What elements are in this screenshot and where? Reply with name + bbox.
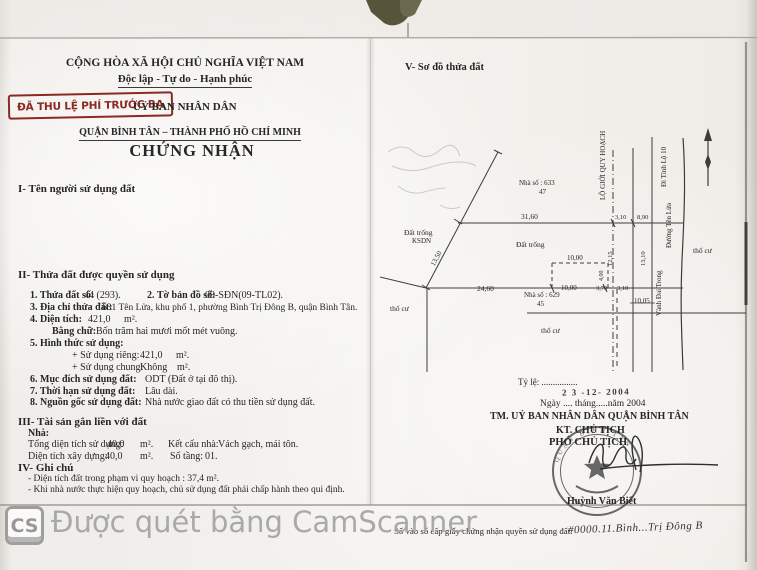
map-dim-890: 8,90 (637, 214, 648, 221)
s3-row1-value2: Vách gạch, mái tôn. (218, 439, 298, 450)
item8-label: 8. Nguồn gốc sử dụng đất: (30, 397, 142, 408)
map-dim-1310: 13,10 (640, 251, 647, 266)
section3-sub: Nhà: (28, 428, 49, 439)
section3-heading: III- Tài sản gắn liền với đất (18, 416, 147, 428)
map-dim-370: 3,70 (596, 285, 607, 292)
map-road-vanhdai-label: Vành Đai Trong (656, 270, 664, 316)
north-arrow (704, 128, 712, 186)
s3-row1-unit: m². (140, 439, 153, 450)
issuer: UỶ BAN NHÂN DÂN (133, 101, 237, 113)
map-dim-1000a: 10,00 (567, 255, 583, 263)
map-resid2: thổ cư (541, 327, 560, 335)
map-house633-no: 47 (539, 189, 546, 197)
camscanner-logo-text: CS (11, 515, 39, 537)
map-dim-400: 4,00 (599, 271, 606, 282)
district-line: QUẬN BÌNH TÂN – THÀNH PHỐ HỒ CHÍ MINH (79, 127, 301, 141)
scanned-certificate-page: QUẬN BÌNH TÂN CỘNG HÒA XÃ HỘI CHỦ NGHĨA … (0, 0, 757, 570)
item4b-value: Bốn trăm hai mươi mốt mét vuông. (96, 326, 238, 337)
map-dim-310b: 3,10 (617, 285, 628, 292)
item5b-unit: m². (177, 362, 190, 373)
section2-heading: II- Thửa đất được quyền sử dụng (18, 269, 175, 281)
date-line: Ngày .... tháng.....năm 2004 (540, 399, 646, 409)
item3-label: 3. Địa chỉ thửa đất: (30, 302, 112, 313)
map-house633: Nhà số : 633 (519, 180, 555, 188)
map-dim-310a: 3,10 (615, 214, 626, 221)
item3-value: 631 Tên Lửa, khu phố 1, phường Bình Trị … (102, 303, 357, 313)
title-pho-chu-tich: PHÓ CHỦ TỊCH (549, 437, 627, 449)
item5-label: 5. Hình thức sử dụng: (30, 338, 123, 349)
map-dim-1005: 10,05 (634, 298, 650, 306)
item5a-value: 421,0 (140, 350, 163, 361)
item4-label: 4. Diện tích: (30, 314, 82, 325)
authority-line: TM. UỶ BAN NHÂN DÂN QUẬN BÌNH TÂN (490, 411, 689, 422)
map-house629: Nhà số : 629 (524, 292, 560, 300)
parcel-diagonal-boundary (426, 152, 498, 288)
map-dim-2460: 24,60 (477, 285, 494, 293)
item7-value: Lâu dài. (145, 386, 178, 397)
item5b-label: + Sử dụng chung: (72, 362, 143, 373)
section4-heading: IV- Ghi chú (18, 462, 73, 474)
item8-value: Nhà nước giao đất có thu tiền sử dụng đấ… (145, 397, 315, 408)
scale-line: Tỷ lệ: ................ (518, 378, 578, 388)
s3-row2-label: Diện tích xây dựng: (28, 451, 108, 462)
map-road-boundary-label: LỘ GIỚI QUY HOẠCH (600, 131, 608, 200)
item2-value: 09-SĐN(09-TL02). (205, 290, 283, 301)
s4-note2: - Khi nhà nước thực hiện quy hoạch, chủ … (28, 485, 345, 495)
road-line-4 (681, 138, 684, 370)
section1-heading: I- Tên người sử dụng đất (18, 183, 135, 195)
map-vacant2: Đất trống (516, 241, 545, 249)
item1-value: 44 (293). (84, 290, 121, 301)
item4-unit: m². (124, 314, 137, 325)
map-road-tenlua-label: Đường Tên Lửa (666, 203, 674, 248)
item4-value: 421,0 (88, 314, 111, 325)
s3-row2-unit: m². (140, 451, 153, 462)
item5b-value: Không (140, 362, 167, 373)
map-resid1: thổ cư (390, 305, 409, 313)
district-line-row: QUẬN BÌNH TÂN – THÀNH PHỐ HỒ CHÍ MINH (0, 127, 380, 138)
s4-note1: - Diện tích đất trong phạm vi quy hoạch … (28, 474, 219, 484)
tape-mark (366, 0, 422, 37)
map-dim-1000b: 10,00 (561, 285, 577, 293)
map-heading: V- Sơ đồ thửa đất (405, 62, 484, 74)
s3-row1-value: 40,0 (107, 439, 125, 450)
s3-row1-label2: Kết cấu nhà: (168, 439, 219, 450)
camscanner-watermark-text: Được quét bằng CamScanner (51, 505, 477, 539)
pencil-scribbles (388, 145, 476, 208)
item5a-unit: m². (176, 350, 189, 361)
national-motto-row: Độc lập - Tự do - Hạnh phúc (0, 73, 370, 85)
map-dim-3160: 31,60 (521, 213, 538, 221)
map-vacant1b: KSDN (412, 238, 431, 246)
title-kt-chu-tich: KT. CHỦ TỊCH (556, 425, 625, 436)
s3-row2-label2: Số tầng: (170, 451, 203, 462)
map-house629-no: 45 (537, 301, 544, 309)
map-vacant1a: Đất trống (404, 229, 433, 237)
signer-name: Huỳnh Văn Biết (567, 496, 636, 507)
item4b-label: Bằng chữ: (52, 326, 96, 337)
doc-title: CHỨNG NHẬN (0, 142, 384, 160)
s3-row2-value2: 01. (205, 451, 218, 462)
date-stamp: 2 3 -12- 2004 (562, 387, 630, 398)
item6-value: ODT (Đất ở tại đô thị). (145, 374, 237, 385)
item7-label: 7. Thời hạn sử dụng đất: (30, 386, 135, 397)
map-road-tinhlo-label: Đi Tỉnh Lộ 10 (661, 147, 669, 187)
item5a-label: + Sử dụng riêng: (72, 350, 139, 361)
map-dim-1215: 12,15 (607, 251, 614, 266)
national-motto: Độc lập - Tự do - Hạnh phúc (118, 73, 252, 88)
item6-label: 6. Mục đích sử dụng đất: (30, 374, 137, 385)
map-resid3: thổ cư (693, 247, 712, 255)
s3-row2-value: 40,0 (105, 451, 123, 462)
camscanner-logo: CS (5, 506, 44, 545)
national-title: CỘNG HÒA XÃ HỘI CHỦ NGHĨA VIỆT NAM (0, 57, 370, 70)
